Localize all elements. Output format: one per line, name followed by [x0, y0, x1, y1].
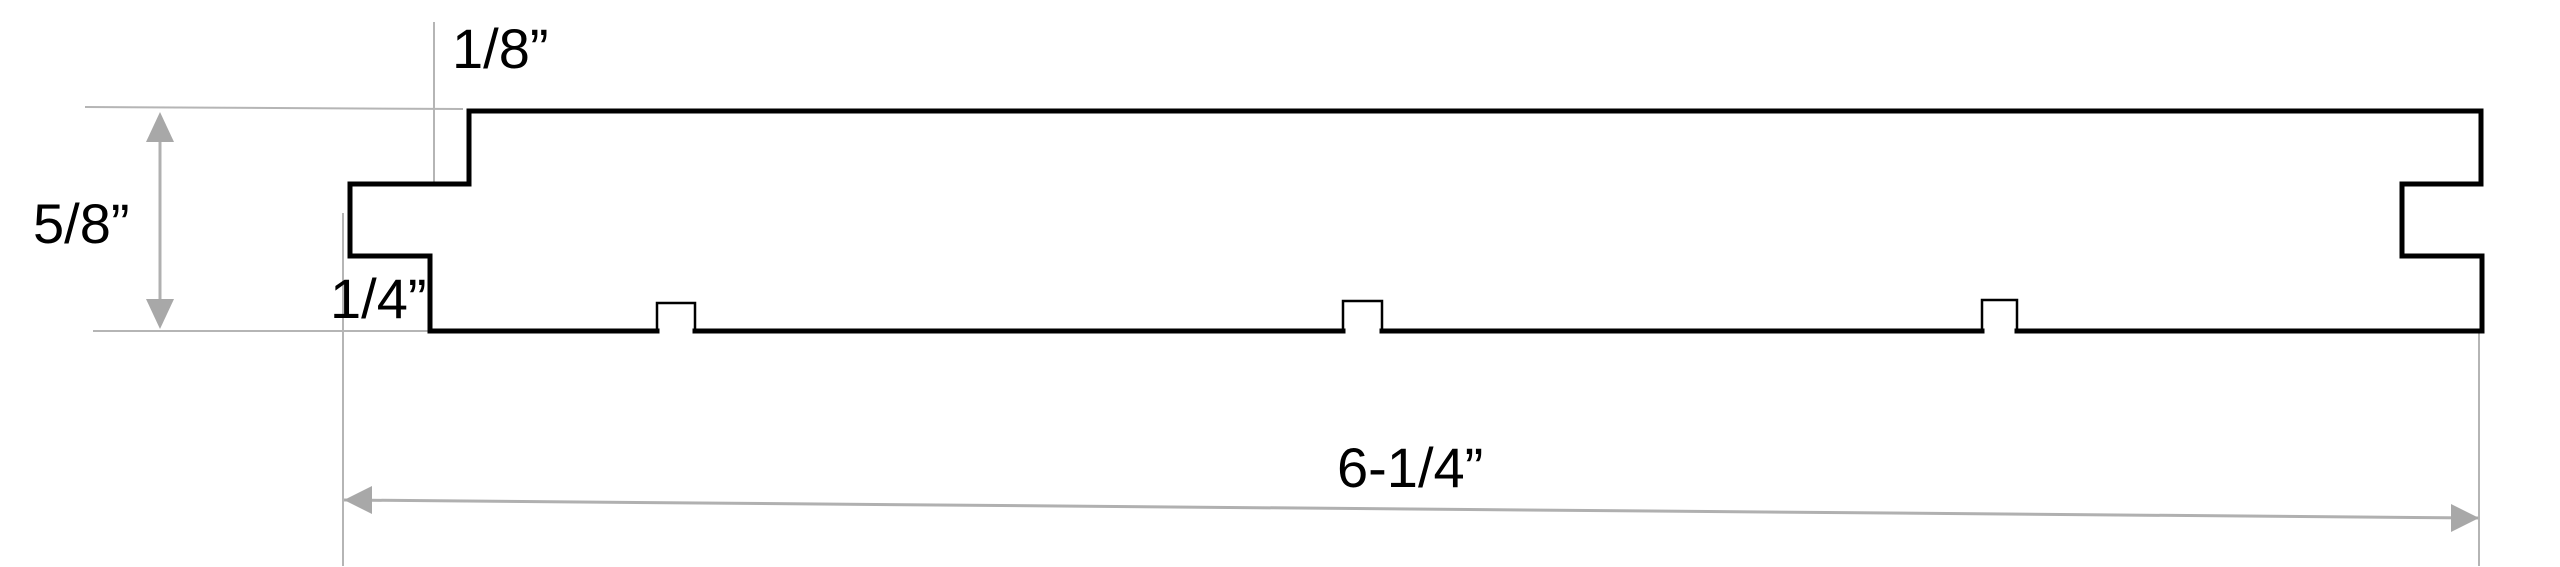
thickness-label: 5/8” [33, 192, 130, 255]
tongue-label: 1/4” [330, 267, 427, 330]
arrow-down-icon [146, 299, 174, 329]
reference-lines [85, 22, 2479, 566]
edge-offset-label: 1/8” [452, 17, 549, 80]
arrow-left-icon [344, 486, 372, 514]
top-face-reference-line [85, 107, 463, 109]
board-outline [350, 111, 2482, 331]
relief-groove-right [1982, 300, 2017, 331]
technical-drawing-canvas: 1/8” 5/8” 1/4” 6-1/4” [0, 0, 2560, 567]
thickness-dimension [146, 112, 174, 329]
relief-groove-center [1343, 301, 1382, 331]
arrow-up-icon [146, 112, 174, 142]
board-profile-diagram: 1/8” 5/8” 1/4” 6-1/4” [0, 0, 2560, 567]
width-dimension-line [344, 500, 2478, 518]
relief-groove-left [657, 303, 695, 331]
arrow-right-icon [2451, 504, 2479, 532]
overall-width-label: 6-1/4” [1337, 436, 1483, 499]
